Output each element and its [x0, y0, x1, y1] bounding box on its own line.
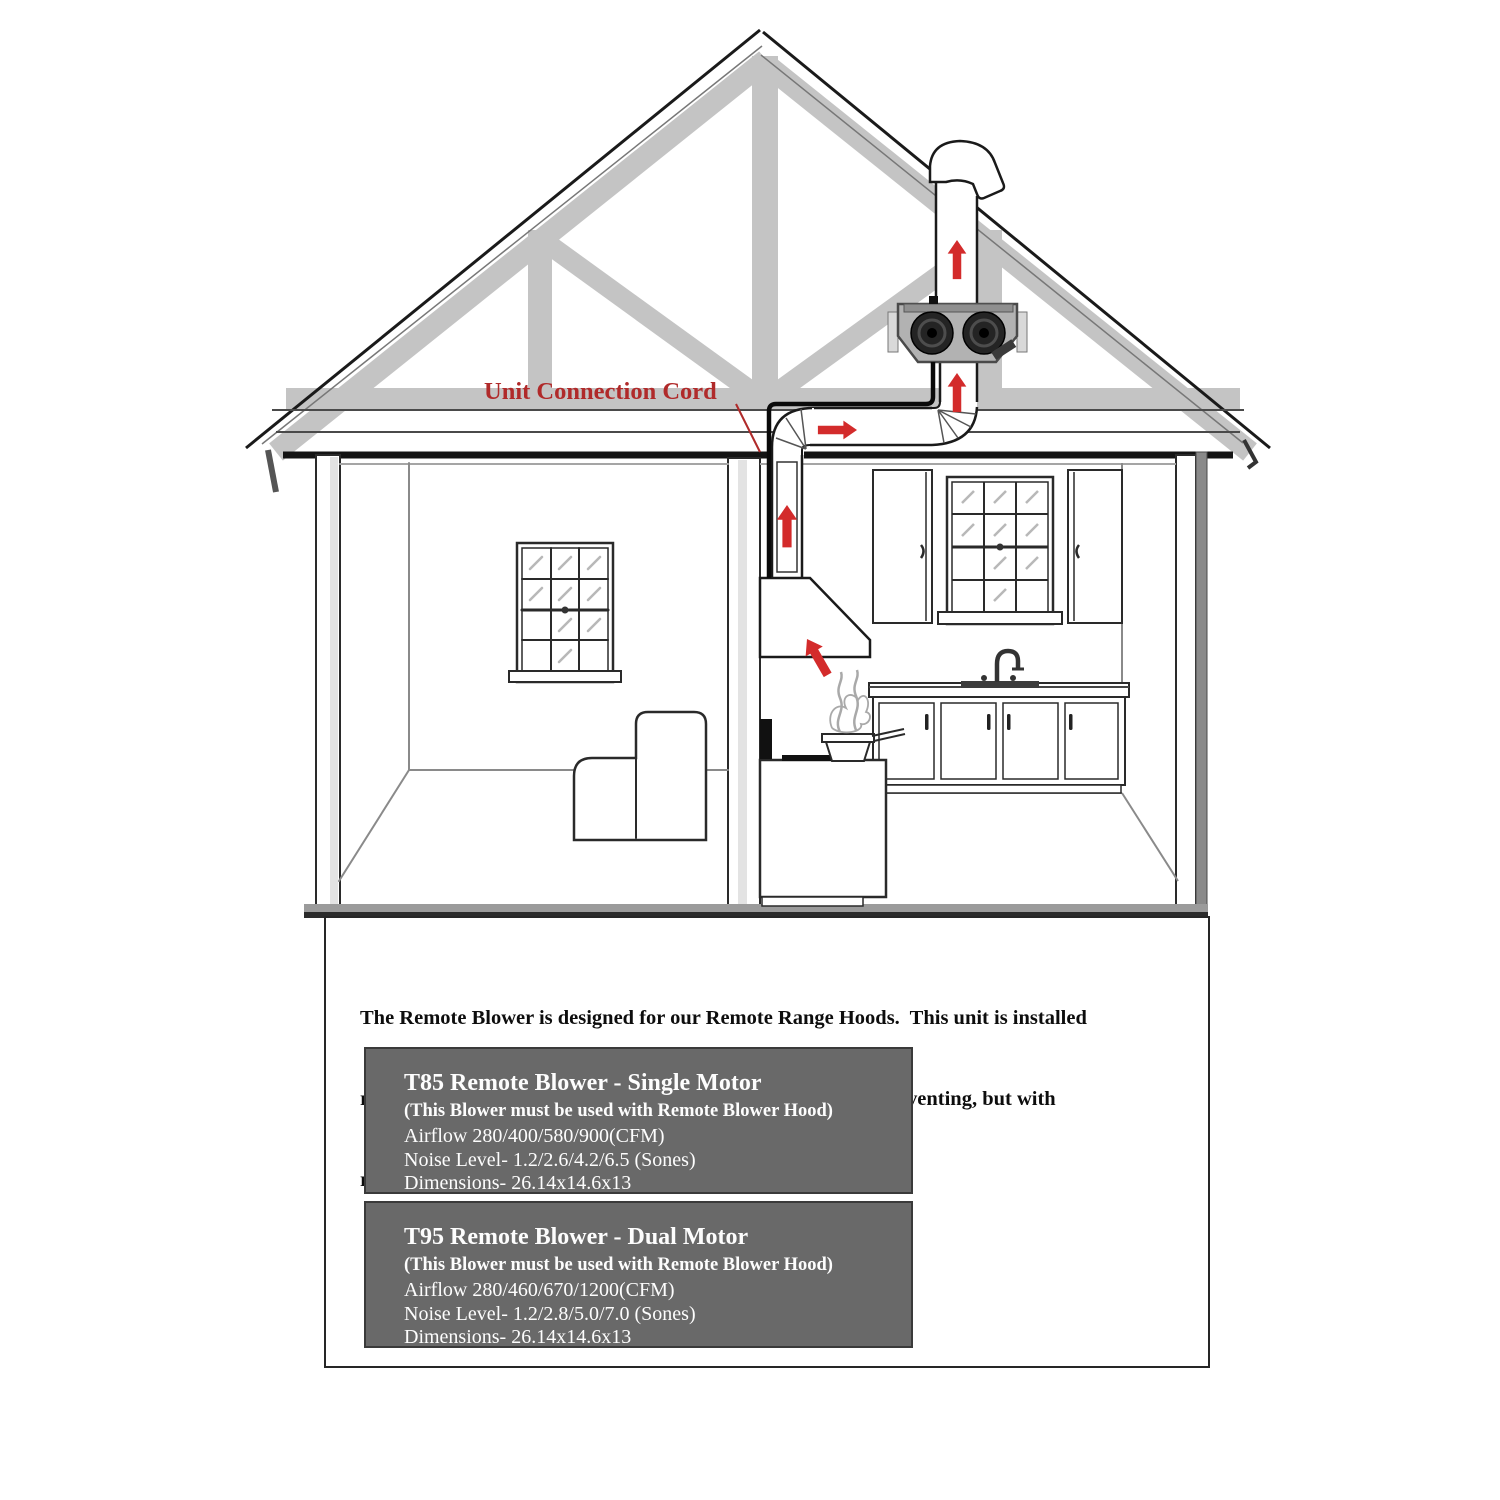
product-dimensions: Dimensions- 26.14x14.6x13	[404, 1326, 911, 1348]
faucet-handle	[1010, 675, 1016, 681]
living-room-window	[509, 543, 621, 682]
door-handle	[925, 714, 929, 730]
product-title: T85 Remote Blower - Single Motor	[404, 1069, 911, 1097]
spec-box-t85: T85 Remote Blower - Single Motor (This B…	[364, 1047, 913, 1194]
product-title: T95 Remote Blower - Dual Motor	[404, 1223, 911, 1251]
product-airflow: Airflow 280/460/670/1200(CFM)	[404, 1279, 911, 1303]
product-airflow: Airflow 280/400/580/900(CFM)	[404, 1125, 911, 1149]
upper-cabinet-left	[873, 470, 932, 623]
cabinet-base	[877, 785, 1121, 793]
product-note: (This Blower must be used with Remote Bl…	[404, 1254, 911, 1276]
info-panel: The Remote Blower is designed for our Re…	[324, 916, 1210, 1368]
range-base	[762, 897, 863, 906]
door-handle	[987, 714, 991, 730]
description-line: The Remote Blower is designed for our Re…	[360, 1005, 1087, 1032]
window-sill	[938, 612, 1062, 624]
kitchen	[760, 463, 1178, 906]
right-wall	[1176, 455, 1196, 906]
roof-truss	[246, 30, 1270, 492]
product-dimensions: Dimensions- 26.14x14.6x13	[404, 1172, 911, 1194]
window-latch	[997, 544, 1004, 551]
product-noise-level: Noise Level- 1.2/2.8/5.0/7.0 (Sones)	[404, 1303, 911, 1327]
door-handle	[1007, 714, 1011, 730]
blower-motor-left	[911, 312, 953, 354]
right-wall-siding	[1196, 452, 1207, 906]
cabinet-door	[1065, 703, 1118, 779]
cord-outlet-box	[760, 719, 772, 759]
armchair	[574, 712, 706, 840]
mount-flange-left	[888, 312, 898, 352]
cabinet-door	[1003, 703, 1058, 779]
attic-elbow-left	[772, 408, 814, 455]
unit-connection-cord-label: Unit Connection Cord	[484, 378, 717, 405]
upper-cabinet-right	[1068, 470, 1122, 623]
range-stove	[760, 755, 886, 906]
sink-counter	[869, 651, 1129, 793]
window-latch	[562, 607, 569, 614]
remote-blower-unit	[888, 296, 1027, 362]
left-rafter-tail	[268, 450, 276, 492]
door-handle	[1069, 714, 1073, 730]
product-note: (This Blower must be used with Remote Bl…	[404, 1100, 911, 1122]
mount-flange-right	[1017, 312, 1027, 352]
spec-box-t95: T95 Remote Blower - Dual Motor (This Blo…	[364, 1201, 913, 1348]
roof-exhaust-duct	[936, 168, 977, 306]
product-noise-level: Noise Level- 1.2/2.6/4.2/6.5 (Sones)	[404, 1149, 911, 1173]
kitchen-window	[938, 477, 1062, 624]
page: Unit Connection Cord The Remote Blower i…	[0, 0, 1500, 1500]
cord-stub	[929, 296, 938, 304]
sink-rim	[961, 681, 1039, 688]
floor-band	[304, 904, 1208, 913]
living-room	[339, 463, 728, 881]
house-cutaway-diagram: Unit Connection Cord	[0, 0, 1500, 922]
steam	[830, 670, 870, 732]
faucet-handle	[981, 675, 987, 681]
window-sill	[509, 671, 621, 682]
label-leader-line	[736, 404, 760, 452]
